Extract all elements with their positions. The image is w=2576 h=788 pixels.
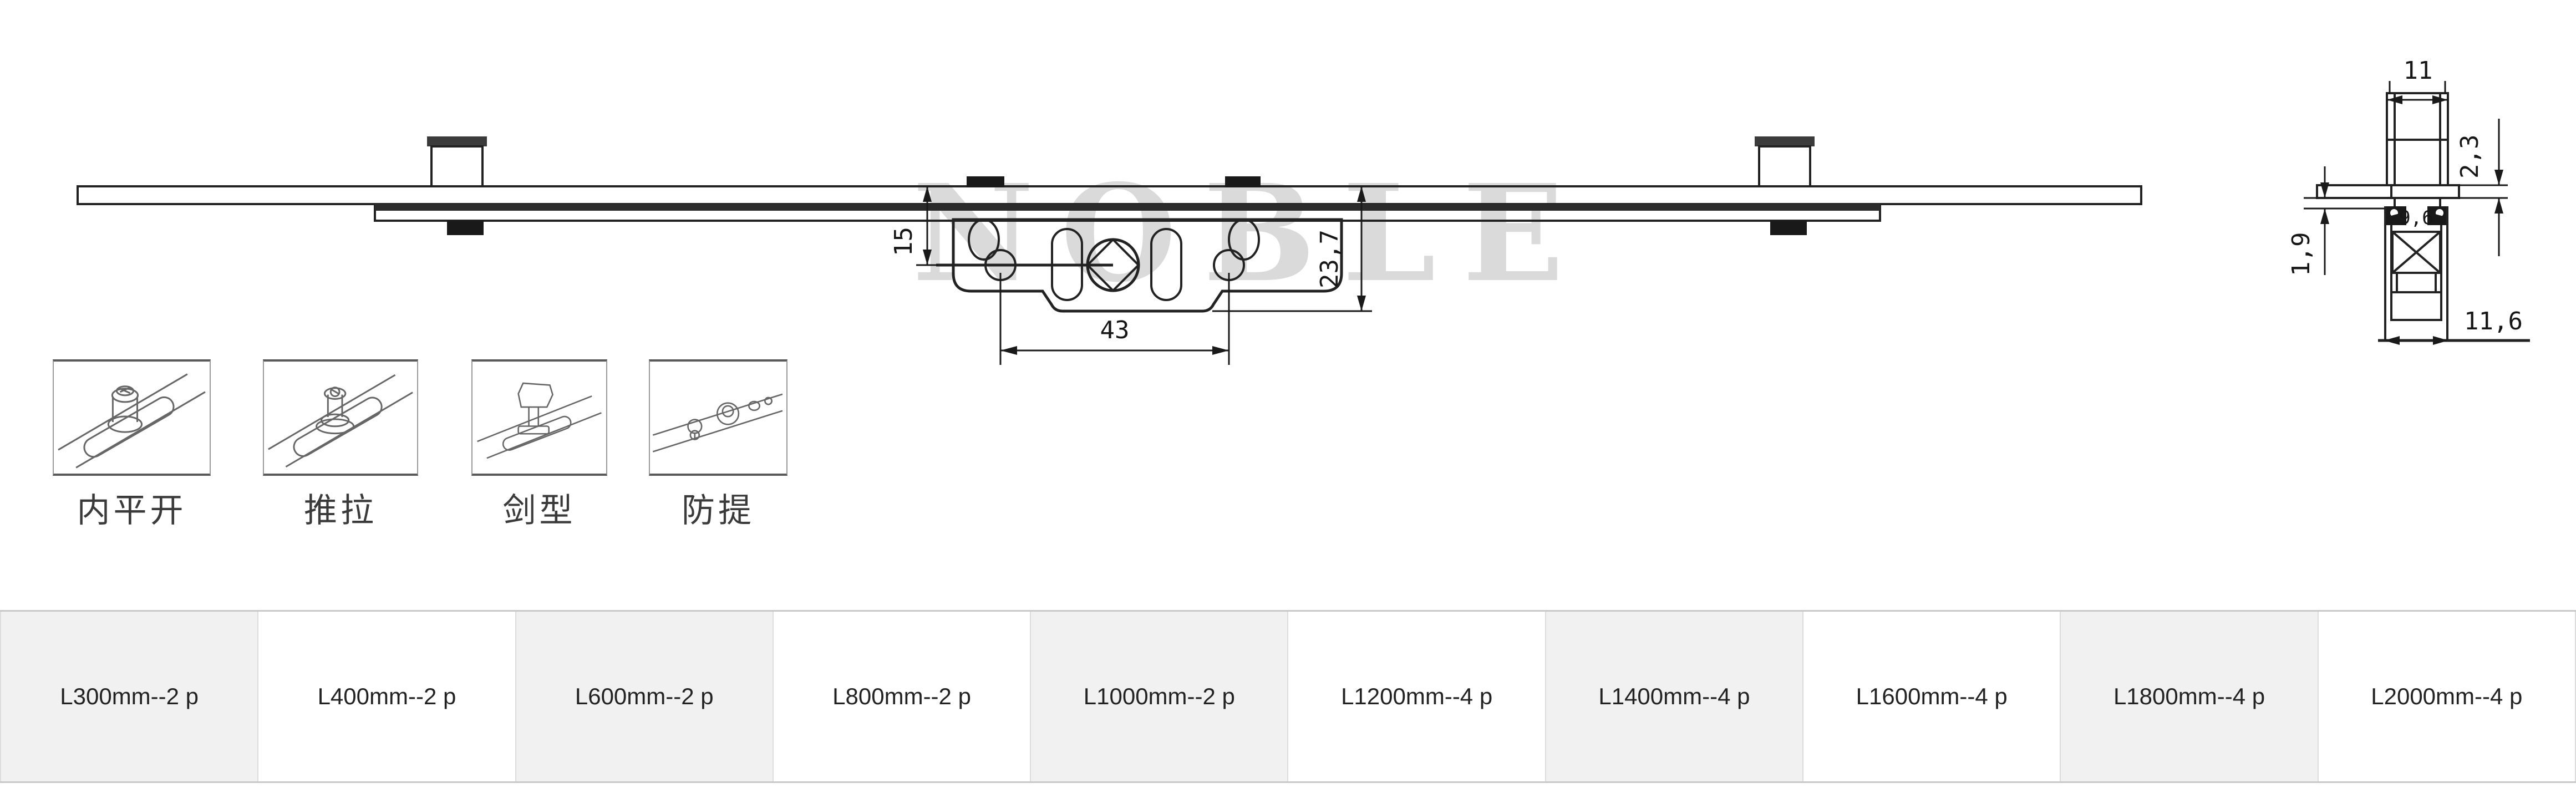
flange	[2317, 185, 2459, 198]
size-option-l300[interactable]: L300mm--2 p	[0, 612, 258, 781]
left-clip	[447, 221, 484, 235]
dim-inner-width-label: 9,6	[2399, 207, 2433, 229]
size-option-l1600[interactable]: L1600mm--4 p	[1803, 612, 2061, 781]
right-lock-block	[1759, 146, 1810, 186]
dim-faceplate-thickness: 2,3	[2456, 119, 2508, 256]
mount-type-label-sword: 剑型	[471, 484, 607, 522]
dim-overall-width: 11,6	[2378, 307, 2530, 345]
size-option-l1400[interactable]: L1400mm--4 p	[1546, 612, 1803, 781]
dim-depth-label: 23,7	[1315, 230, 1344, 288]
gearbox-right-tab	[1225, 176, 1261, 187]
size-option-l1800[interactable]: L1800mm--4 p	[2061, 612, 2318, 781]
size-option-l1000[interactable]: L1000mm--2 p	[1031, 612, 1288, 781]
size-option-l2000[interactable]: L2000mm--4 p	[2319, 612, 2576, 781]
sliding-cam-icon	[264, 362, 417, 474]
mount-type-sliding-thumb	[263, 359, 418, 476]
left-lock-block	[431, 146, 482, 186]
dim-lip-height-label: 1,9	[2287, 232, 2315, 276]
mount-type-label-sliding: 推拉	[263, 484, 418, 522]
mount-type-casement-thumb	[53, 359, 211, 476]
right-clip	[1770, 221, 1807, 235]
sword-striker-icon	[472, 362, 606, 474]
dim-tongue-width-label: 11	[2404, 57, 2433, 85]
mount-type-label-antilift: 防提	[649, 484, 787, 522]
casement-cam-icon	[54, 362, 210, 474]
dim-tongue-width: 11	[2387, 57, 2448, 104]
right-lock-block-cap	[1755, 136, 1815, 146]
size-options-table: L300mm--2 p L400mm--2 p L600mm--2 p L800…	[0, 610, 2576, 783]
gearbox-left-tab	[967, 176, 1004, 187]
drive-rod-edge	[375, 204, 1880, 211]
left-lock-block-cap	[427, 136, 487, 146]
size-option-l400[interactable]: L400mm--2 p	[258, 612, 516, 781]
size-option-l800[interactable]: L800mm--2 p	[774, 612, 1031, 781]
size-option-l1200[interactable]: L1200mm--4 p	[1288, 612, 1546, 781]
product-spec-sheet: NOBLE	[0, 0, 2576, 788]
dim-lip-height: 1,9	[2287, 166, 2385, 276]
dim-overall-width-label: 11,6	[2464, 307, 2523, 335]
size-option-l600[interactable]: L600mm--2 p	[516, 612, 774, 781]
dim-screw-spacing-label: 43	[1100, 316, 1130, 344]
mount-type-label-casement: 内平开	[53, 484, 211, 522]
mount-type-sword-thumb	[471, 359, 607, 476]
anti-lift-rail-icon	[650, 362, 786, 474]
dim-backset-label: 15	[890, 227, 918, 256]
mount-type-antilift-thumb	[649, 359, 787, 476]
channel-foot	[2391, 292, 2441, 320]
side-view: 11 9,6	[2287, 57, 2530, 345]
dim-faceplate-thickness-label: 2,3	[2456, 135, 2484, 179]
